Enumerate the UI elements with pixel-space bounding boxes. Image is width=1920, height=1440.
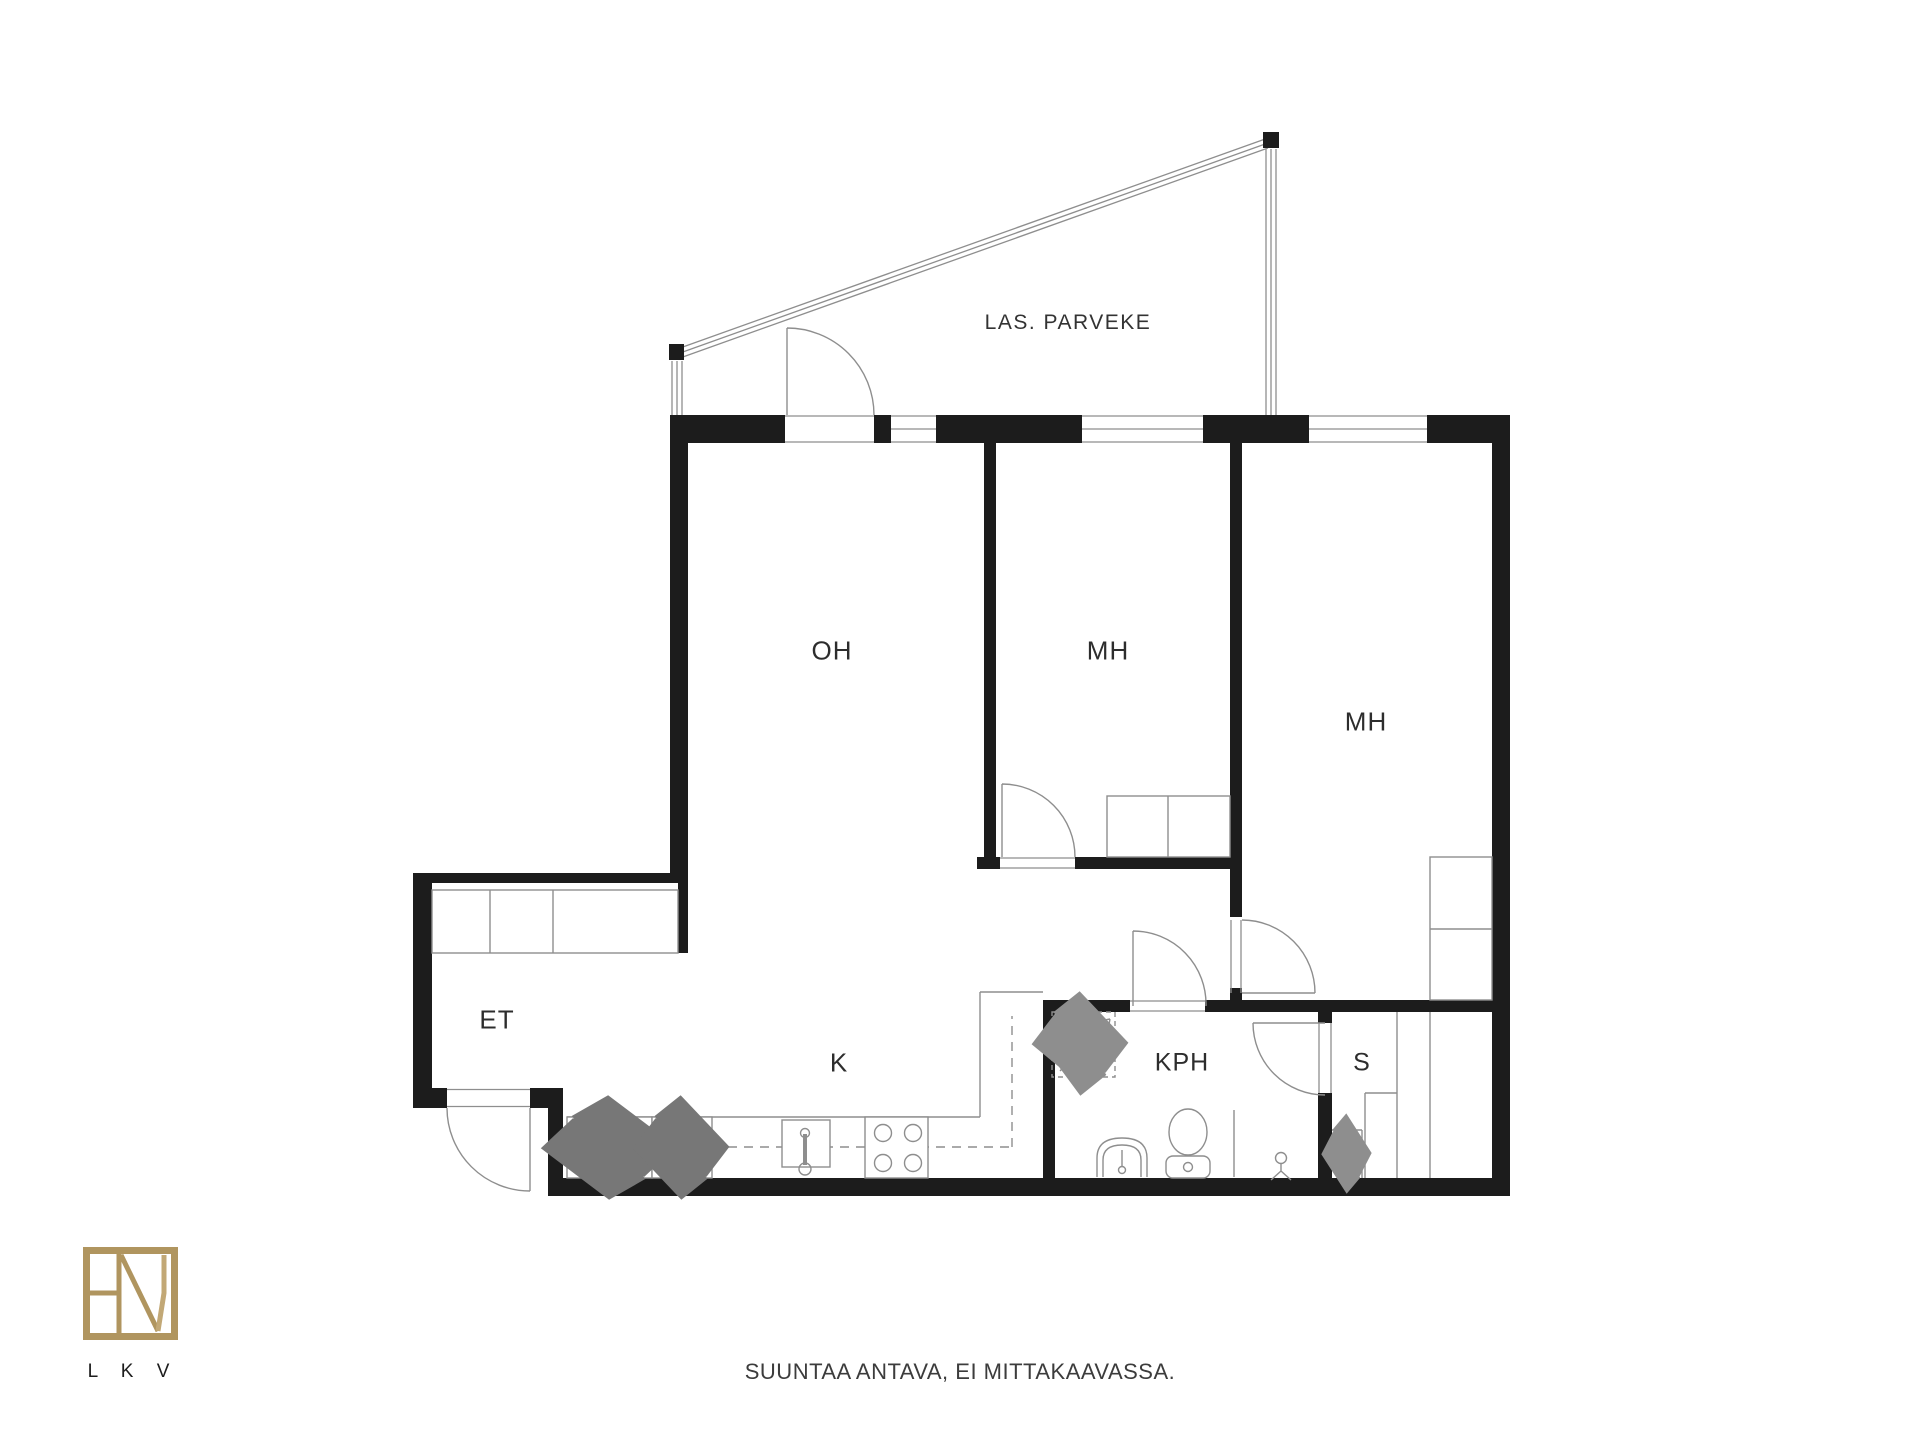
balcony-label: LAS. PARVEKE [985, 311, 1152, 335]
sauna-fixtures [1332, 1012, 1430, 1178]
balcony-glazing [672, 138, 1276, 415]
sauna-label: S [1353, 1049, 1371, 1078]
washer-reservation [1052, 1012, 1115, 1077]
bathroom-door [1133, 931, 1206, 1006]
door-threshold [447, 1090, 530, 1107]
wall-segment [1230, 443, 1242, 917]
wall-segment [413, 873, 432, 1108]
wall-segment [530, 1088, 563, 1108]
door-threshold [1231, 920, 1241, 993]
bedroom1-closet [1107, 796, 1230, 857]
floor-plan-canvas [0, 0, 1920, 1440]
wall-segment [1205, 1000, 1492, 1012]
entry-label: ET [479, 1005, 514, 1036]
entry-closet [432, 890, 678, 953]
door-threshold [1319, 1023, 1331, 1093]
entry-door [447, 1108, 530, 1191]
wall-segment [1203, 415, 1309, 443]
bedroom1-label: MH [1087, 636, 1129, 667]
door-threshold [785, 416, 874, 442]
logo-text: L K V [88, 1361, 179, 1383]
bathroom-sink [1097, 1138, 1147, 1177]
shower-icon [1271, 1153, 1291, 1181]
appliance-bolt-icon [660, 1124, 702, 1171]
disclaimer-text: SUUNTAA ANTAVA, EI MITTAKAAVASSA. [745, 1359, 1176, 1385]
closets [432, 796, 1492, 1000]
wall-segment [936, 415, 1082, 443]
wall-segment [984, 443, 996, 857]
window [1082, 416, 1203, 442]
wall-segment [413, 873, 688, 883]
kitchen-fixtures [567, 992, 1043, 1178]
wall-segment [977, 857, 1000, 869]
bathroom-label: KPH [1155, 1049, 1209, 1078]
bedroom1-door [1002, 784, 1075, 857]
appliance-bolt-icon [579, 1124, 638, 1171]
wall-segment [1075, 857, 1242, 869]
sauna-stove-bolt-icon [1336, 1136, 1358, 1172]
appliance-bolt-icon [1059, 1020, 1101, 1067]
exterior-walls [413, 415, 1510, 1196]
balcony-post-right [1263, 132, 1279, 148]
brand-logo [83, 1247, 178, 1340]
sauna-door [1253, 1023, 1325, 1095]
balcony-door [787, 328, 874, 415]
floor-plan-page: LAS. PARVEKE OH MH MH ET K KPH S L K V S… [0, 0, 1920, 1440]
stove [865, 1117, 928, 1178]
toilet [1166, 1109, 1210, 1178]
interior-walls [977, 443, 1492, 1178]
wall-segment [670, 415, 688, 883]
bedroom2-closet [1430, 857, 1492, 1000]
kitchen-sink [782, 1120, 830, 1175]
balcony-glass-diagonal [680, 138, 1268, 358]
sauna-benches [1365, 1012, 1430, 1178]
wall-segment [413, 1088, 447, 1108]
door-threshold [1130, 1001, 1205, 1011]
bedroom2-label: MH [1345, 707, 1387, 738]
wall-segment [1492, 415, 1510, 1196]
window [891, 416, 936, 442]
upper-cabinet-dashed-line [712, 1016, 1012, 1147]
kitchen-label: K [830, 1048, 848, 1079]
living-room-label: OH [812, 636, 853, 667]
wall-segment [1318, 1012, 1332, 1023]
kitchen-counter [567, 992, 1043, 1117]
wall-segment [678, 883, 688, 953]
balcony-post-left [669, 344, 684, 360]
balcony-glass-right [1266, 149, 1276, 415]
window [1309, 416, 1427, 442]
wall-segment [874, 415, 891, 443]
balcony-glass-left [672, 361, 682, 415]
door-threshold [1000, 858, 1075, 868]
bathroom-fixtures [1052, 1012, 1291, 1180]
bedroom2-door [1242, 920, 1315, 993]
